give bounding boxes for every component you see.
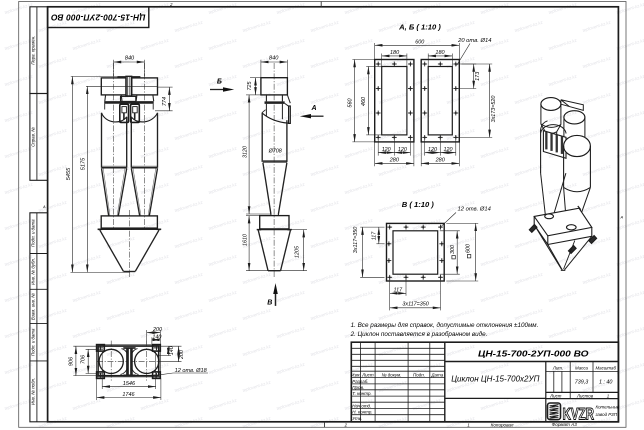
svg-text:725: 725 [247,81,253,91]
svg-text:120: 120 [428,147,437,153]
svg-text:3х117=350: 3х117=350 [402,302,428,308]
svg-text:600: 600 [415,40,424,46]
svg-text:280: 280 [389,158,400,164]
svg-text:200: 200 [179,350,185,360]
svg-text:ЦН-15-700-2УП-000 ВО: ЦН-15-700-2УП-000 ВО [478,349,589,359]
svg-text:Лит.: Лит. [552,366,563,371]
svg-text:А: А [619,215,623,220]
svg-text:Лист: Лист [549,394,562,399]
svg-text:1. Все размеры для справок, до: 1. Все размеры для справок, допустимые о… [351,321,539,329]
svg-text:А: А [310,105,316,112]
svg-text:560: 560 [348,97,354,107]
svg-text:739,3: 739,3 [575,380,589,386]
svg-text:Т. контр.: Т. контр. [352,391,371,396]
svg-text:180: 180 [435,50,445,56]
svg-text:120: 120 [444,147,453,153]
svg-text:600: 600 [465,244,471,253]
svg-text:117: 117 [372,231,378,241]
svg-text:Н. контр.: Н. контр. [352,410,372,415]
svg-text:Пров.: Пров. [352,385,364,390]
svg-text:ЦН-15-700-2УП-000 ВО: ЦН-15-700-2УП-000 ВО [51,13,146,23]
svg-text:№ докум.: № докум. [382,373,402,378]
svg-text:Циклон ЦН-15-700х2УП: Циклон ЦН-15-700х2УП [451,375,539,384]
svg-text:300: 300 [450,245,456,254]
svg-text:3120: 3120 [242,146,248,158]
svg-text:Копировал: Копировал [491,423,514,428]
svg-text:Масштаб: Масштаб [595,366,616,371]
svg-text:Листов: Листов [576,394,594,399]
svg-text:3х117=350: 3х117=350 [353,227,359,253]
svg-text:140: 140 [152,334,161,340]
svg-text:Масса: Масса [575,366,589,371]
svg-text:Дата: Дата [430,373,443,378]
svg-text:Утв.: Утв. [352,416,362,421]
svg-text:200: 200 [152,327,162,333]
svg-text:20 отв. Ø14: 20 отв. Ø14 [457,38,491,44]
svg-text:140: 140 [169,346,175,355]
svg-text:В ( 1:10 ): В ( 1:10 ) [402,200,435,209]
svg-text:460: 460 [361,96,367,106]
svg-text:Взам. инв. №: Взам. инв. № [31,293,36,320]
svg-text:KVZR: KVZR [563,405,595,423]
svg-text:Лист: Лист [361,373,374,378]
svg-text:Инв. № дубл.: Инв. № дубл. [31,258,36,285]
svg-text:Изм.: Изм. [351,373,361,378]
svg-text:Подп. и дата: Подп. и дата [31,219,36,247]
svg-text:Котельный: Котельный [596,405,620,410]
svg-text:706: 706 [81,355,87,364]
svg-text:Нач.отд.: Нач.отд. [352,404,371,409]
svg-text:3х173=520: 3х173=520 [491,96,497,123]
svg-text:180: 180 [390,50,400,56]
svg-text:Б: Б [217,79,222,86]
svg-text:А: А [42,205,46,209]
svg-text:173: 173 [475,71,481,81]
svg-text:117: 117 [394,288,404,294]
svg-text:1 : 40: 1 : 40 [599,380,613,386]
svg-text:Подп.: Подп. [413,373,425,378]
svg-text:А, Б ( 1:10 ): А, Б ( 1:10 ) [398,22,441,31]
svg-text:840: 840 [269,56,279,62]
svg-text:280: 280 [435,158,446,164]
svg-text:Подп. и дата: Подп. и дата [31,328,36,356]
svg-text:5455: 5455 [66,167,72,180]
svg-text:774: 774 [162,97,168,106]
svg-text:120: 120 [382,147,391,153]
svg-text:завод РЗП: завод РЗП [595,412,618,417]
svg-text:1746: 1746 [122,392,135,398]
svg-text:Справ. №: Справ. № [31,127,36,147]
svg-text:840: 840 [125,56,135,62]
svg-text:1: 1 [467,422,469,427]
svg-text:2. Циклон поставляется в разоб: 2. Циклон поставляется в разобранном вид… [350,330,488,338]
svg-text:906: 906 [68,357,74,366]
svg-text:120: 120 [398,147,407,153]
svg-text:12 отв. Ø14: 12 отв. Ø14 [458,207,491,213]
svg-text:Перв. примен.: Перв. примен. [31,36,36,65]
svg-text:В: В [267,300,272,307]
svg-text:Разраб.: Разраб. [352,379,368,384]
svg-text:Ø708: Ø708 [268,148,282,154]
svg-text:1546: 1546 [123,381,136,387]
svg-text:1205: 1205 [295,245,301,258]
svg-text:5175: 5175 [81,157,87,170]
svg-text:Инв. № подл.: Инв. № подл. [31,378,36,405]
svg-text:1610: 1610 [242,234,248,246]
